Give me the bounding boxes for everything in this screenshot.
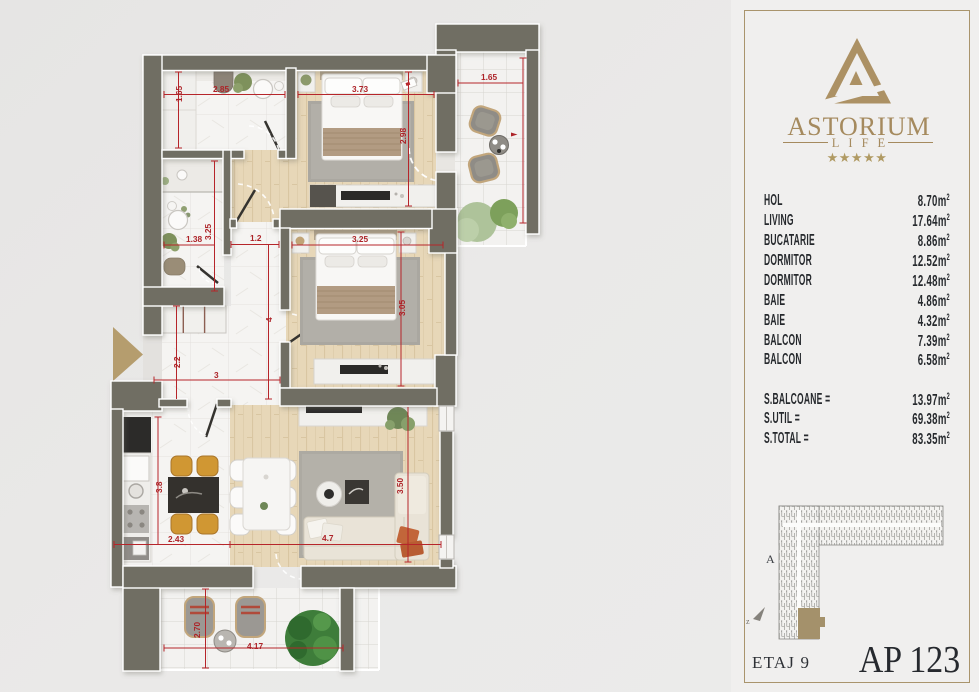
svg-text:2.70: 2.70 bbox=[192, 621, 202, 638]
svg-text:3.25: 3.25 bbox=[352, 234, 369, 244]
svg-text:2.98: 2.98 bbox=[398, 127, 408, 144]
svg-text:3.25: 3.25 bbox=[203, 223, 213, 240]
svg-text:4.17: 4.17 bbox=[247, 641, 264, 651]
svg-text:4: 4 bbox=[264, 317, 274, 322]
svg-text:1.65: 1.65 bbox=[174, 85, 184, 102]
svg-text:3.50: 3.50 bbox=[395, 477, 405, 494]
svg-text:3.05: 3.05 bbox=[397, 299, 407, 316]
svg-text:1.2: 1.2 bbox=[250, 233, 262, 243]
svg-text:1.65: 1.65 bbox=[481, 72, 498, 82]
svg-text:2.85: 2.85 bbox=[213, 84, 230, 94]
svg-text:3.8: 3.8 bbox=[154, 481, 164, 493]
svg-text:z: z bbox=[746, 617, 750, 626]
svg-text:2.43: 2.43 bbox=[168, 534, 185, 544]
svg-text:3: 3 bbox=[214, 370, 219, 380]
svg-text:4.7: 4.7 bbox=[322, 533, 334, 543]
svg-text:3.73: 3.73 bbox=[352, 84, 369, 94]
svg-text:1.38: 1.38 bbox=[186, 234, 203, 244]
svg-text:2.2: 2.2 bbox=[172, 356, 182, 368]
